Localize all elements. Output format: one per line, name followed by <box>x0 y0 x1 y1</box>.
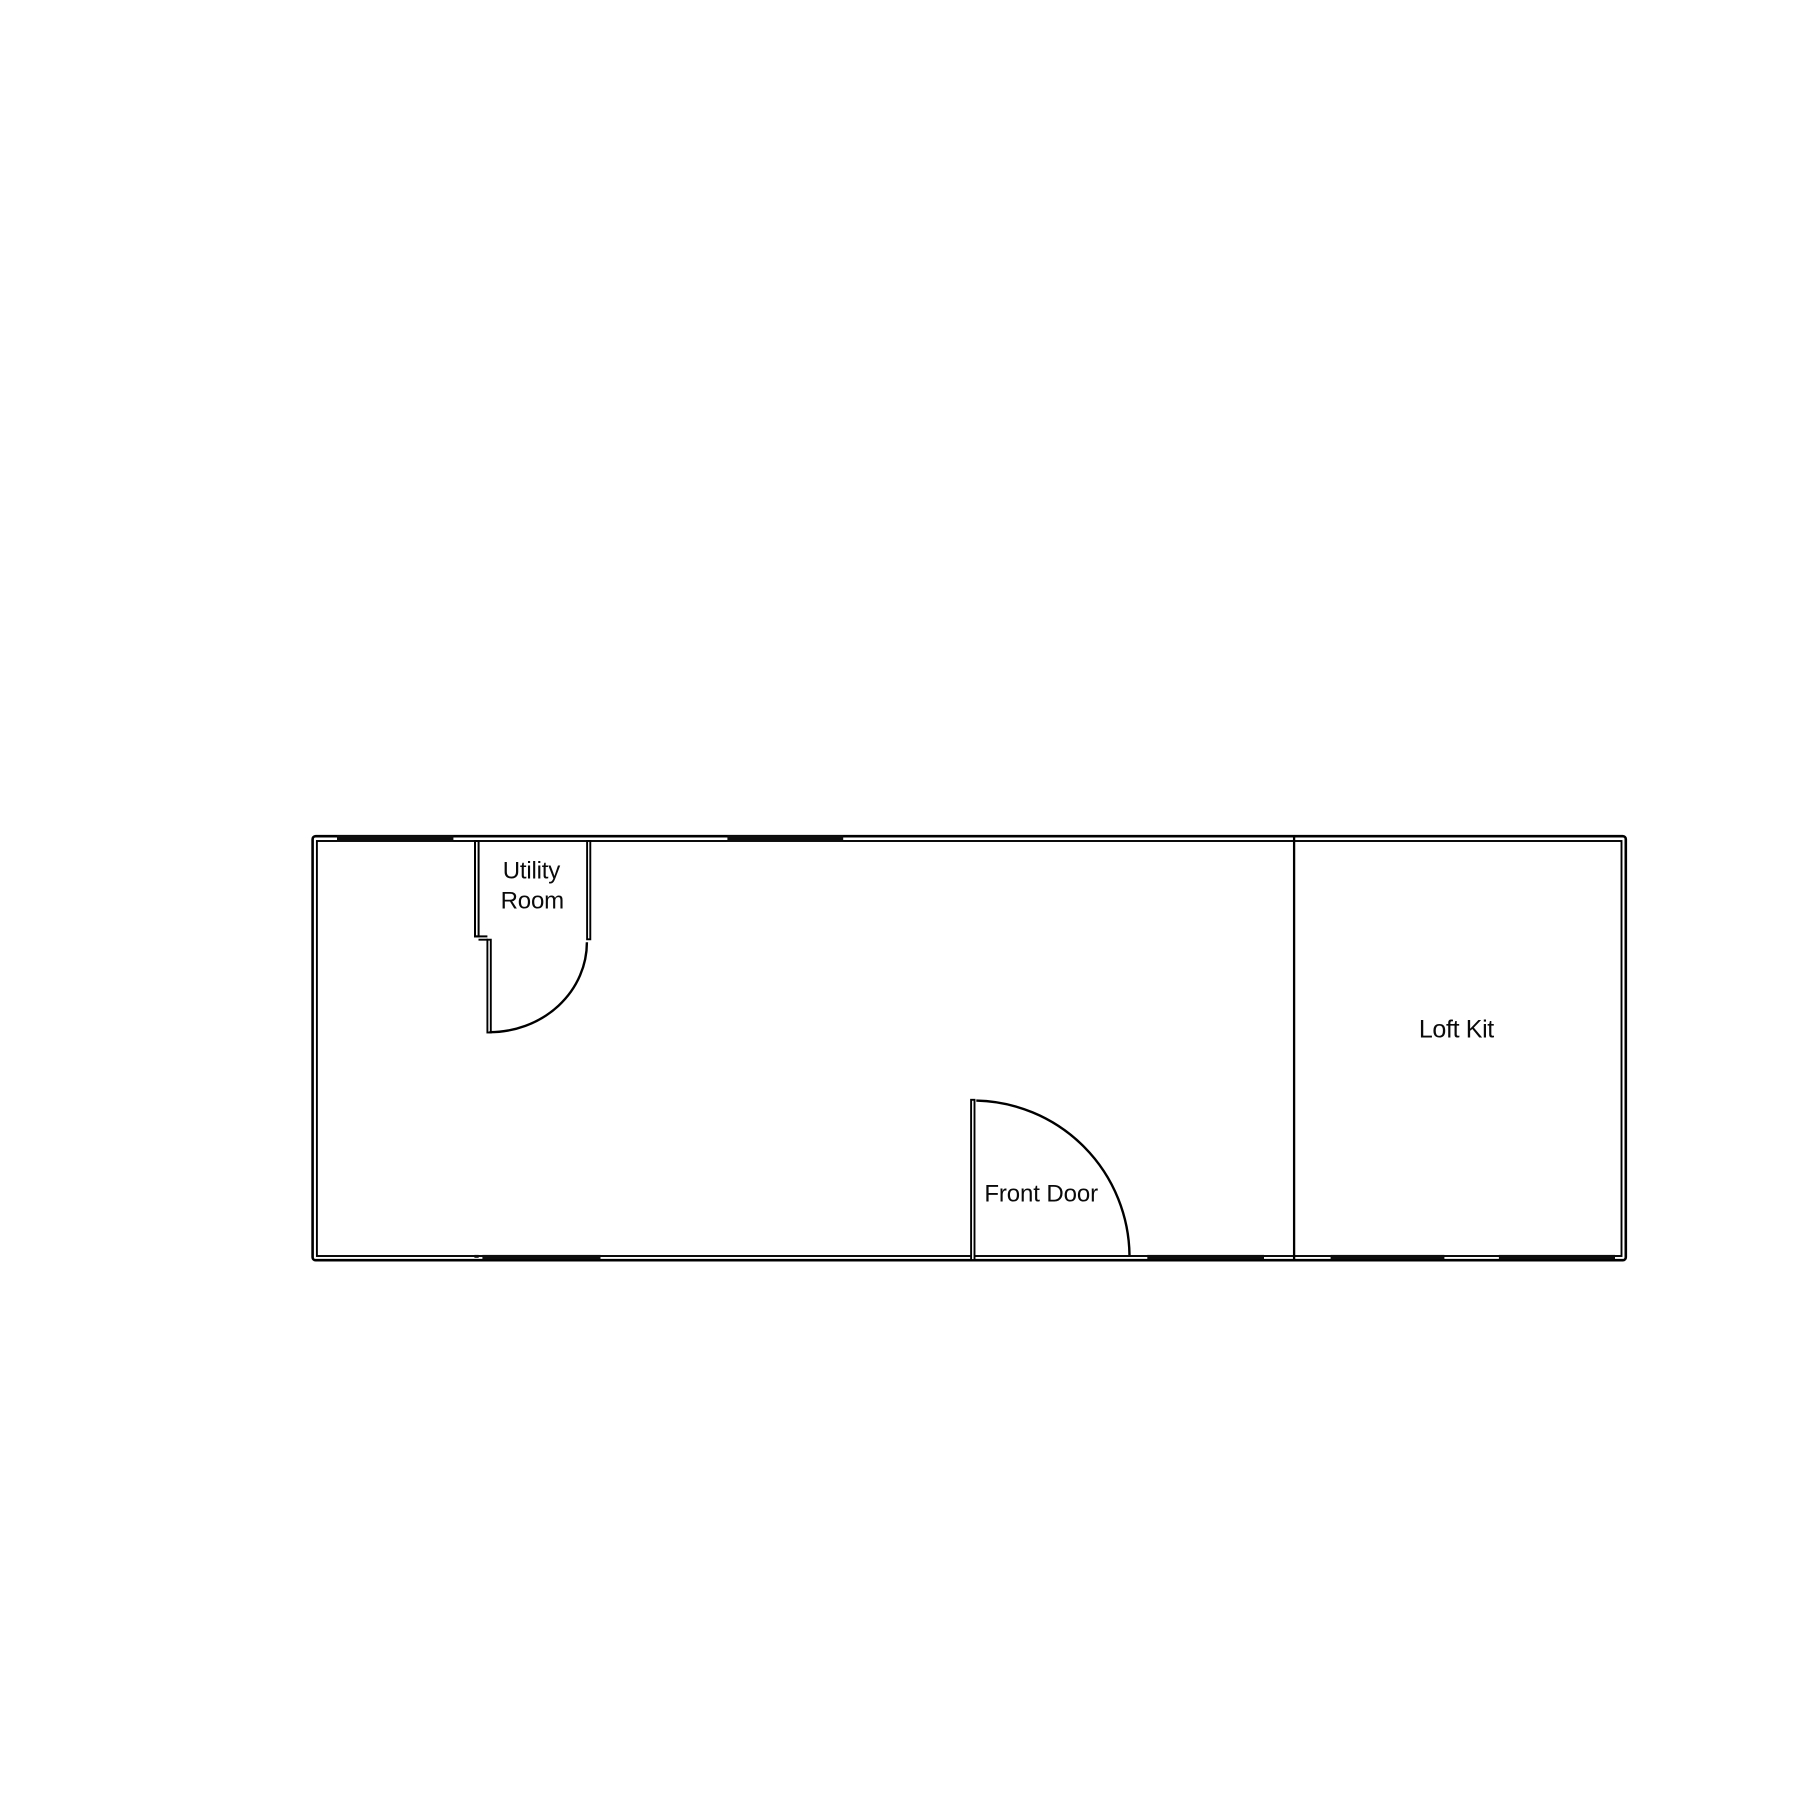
svg-text:Room: Room <box>501 888 564 915</box>
svg-text:Loft Kit: Loft Kit <box>1419 1016 1494 1044</box>
svg-text:Front Door: Front Door <box>984 1181 1098 1208</box>
svg-text:Utility: Utility <box>503 858 560 885</box>
